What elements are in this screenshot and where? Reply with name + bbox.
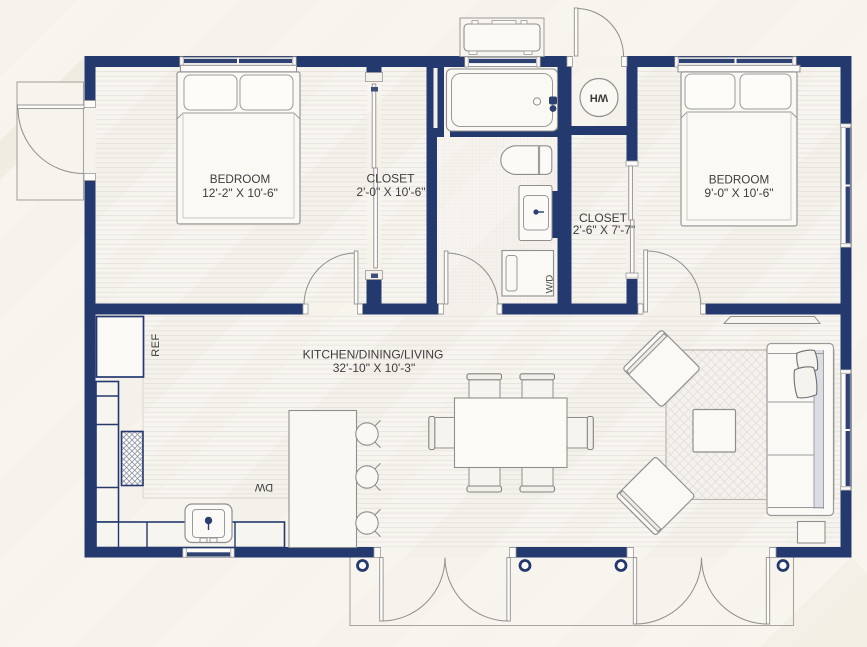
svg-text:12'-2" X 10'-6": 12'-2" X 10'-6" <box>202 186 278 200</box>
svg-text:2'-0" X 10'-6": 2'-0" X 10'-6" <box>356 185 425 199</box>
svg-text:DW: DW <box>254 481 273 493</box>
svg-text:KITCHEN/DINING/LIVING: KITCHEN/DINING/LIVING <box>303 348 444 362</box>
svg-text:32'-10" X 10'-3": 32'-10" X 10'-3" <box>333 361 415 375</box>
svg-text:WH: WH <box>590 92 608 104</box>
svg-text:REF: REF <box>150 333 162 357</box>
svg-text:BEDROOM: BEDROOM <box>210 173 270 186</box>
svg-text:BEDROOM: BEDROOM <box>709 174 769 187</box>
svg-text:2'-6" X 7'-7": 2'-6" X 7'-7" <box>573 223 635 237</box>
svg-text:9'-0" X 10'-6": 9'-0" X 10'-6" <box>704 186 773 200</box>
svg-text:W/D: W/D <box>545 275 556 294</box>
svg-text:CLOSET: CLOSET <box>366 172 415 186</box>
